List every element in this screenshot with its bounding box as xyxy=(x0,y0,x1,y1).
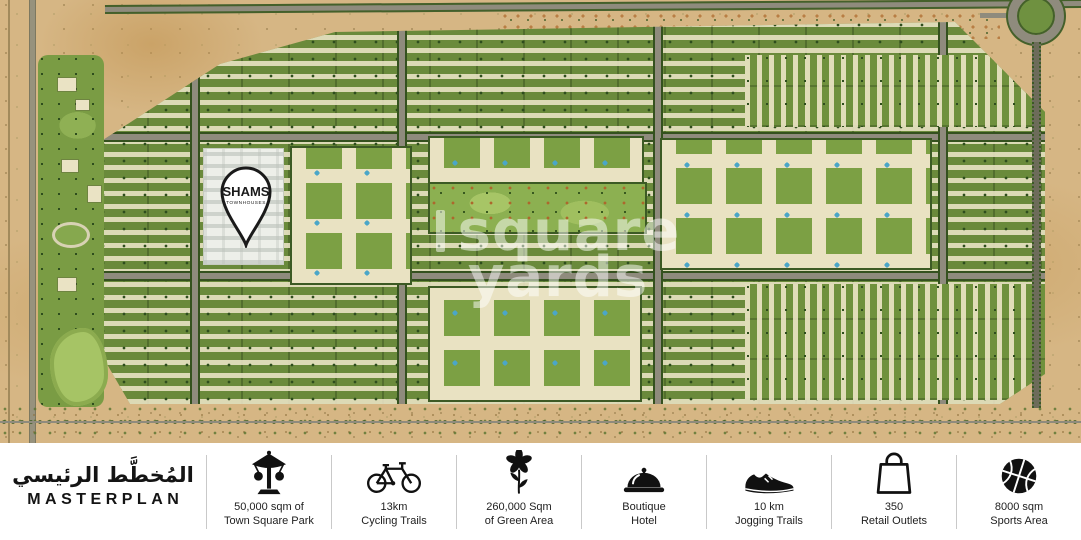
apartment-block xyxy=(430,138,642,182)
apartment-block xyxy=(430,288,640,400)
masterplan-title-block: المُخطَّط الرئيسي MASTERPLAN xyxy=(0,443,206,540)
amenity-label: 8000 sqm xyxy=(995,500,1043,514)
amenity-jogging-trails: 10 km Jogging Trails xyxy=(707,443,831,540)
pin-title: SHAMS xyxy=(223,184,270,199)
golf-green xyxy=(50,328,108,406)
amenity-label: 350 xyxy=(885,500,903,514)
facility-building xyxy=(58,78,76,91)
apartment-block xyxy=(292,148,410,283)
amenity-label: Cycling Trails xyxy=(361,514,426,528)
road xyxy=(100,271,1045,281)
amenity-label: Boutique xyxy=(622,500,665,514)
desert-road xyxy=(1032,42,1041,408)
amenity-label: Town Square Park xyxy=(224,514,314,528)
amenity-label: 260,000 Sqm xyxy=(486,500,551,514)
amenity-label: Hotel xyxy=(631,514,657,528)
amenity-sports-area: 8000 sqm Sports Area xyxy=(957,443,1081,540)
amenity-label: of Green Area xyxy=(485,514,554,528)
facility-building xyxy=(76,100,89,110)
central-park xyxy=(430,184,645,232)
legend-bar: المُخطَّط الرئيسي MASTERPLAN 50,000 sqm … xyxy=(0,443,1081,540)
amenity-cycling-trails: 13km Cycling Trails xyxy=(332,443,456,540)
masterplan-map: square yards SHAMS TOWNHOUSES xyxy=(0,0,1081,443)
amenity-label: 13km xyxy=(381,500,408,514)
facility-building xyxy=(88,186,101,202)
masterplan-title-arabic: المُخطَّط الرئيسي xyxy=(12,464,194,487)
desert-road xyxy=(29,0,36,443)
amenity-label: Sports Area xyxy=(990,514,1047,528)
hotel-bell-icon xyxy=(622,450,666,496)
stadium-oval xyxy=(52,222,90,248)
apartment-block xyxy=(662,140,930,268)
amenity-boutique-hotel: Boutique Hotel xyxy=(582,443,706,540)
facility-building xyxy=(62,160,78,172)
amenity-label: Jogging Trails xyxy=(735,514,803,528)
bicycle-icon xyxy=(365,450,423,496)
townhouse-block xyxy=(745,55,1081,127)
amenity-town-square-park: 50,000 sqm of Town Square Park xyxy=(207,443,331,540)
road xyxy=(190,22,200,404)
pin-subtitle: TOWNHOUSES xyxy=(226,200,266,206)
basketball-icon xyxy=(999,450,1039,496)
amenity-green-area: 260,000 Sqm of Green Area xyxy=(457,443,581,540)
amenity-label: 10 km xyxy=(754,500,784,514)
amenity-retail-outlets: 350 Retail Outlets xyxy=(832,443,956,540)
roundabout xyxy=(1008,0,1064,44)
pin-shape xyxy=(222,168,270,245)
road xyxy=(980,13,1010,18)
flower-icon xyxy=(502,450,536,496)
carousel-ride-icon xyxy=(246,450,292,496)
masterplan-screenshot: square yards SHAMS TOWNHOUSES المُخطَّط … xyxy=(0,0,1081,540)
desert-road xyxy=(8,0,10,443)
masterplan-title-english: MASTERPLAN xyxy=(27,491,183,509)
shopping-bag-icon xyxy=(874,450,914,496)
facility-building xyxy=(58,278,76,291)
amenity-label: 50,000 sqm of xyxy=(234,500,304,514)
sneaker-icon xyxy=(741,450,797,496)
amenity-label: Retail Outlets xyxy=(861,514,927,528)
shams-location-pin: SHAMS TOWNHOUSES xyxy=(214,163,278,248)
townhouse-block xyxy=(745,284,1081,400)
tree-lined-road xyxy=(0,418,1081,427)
